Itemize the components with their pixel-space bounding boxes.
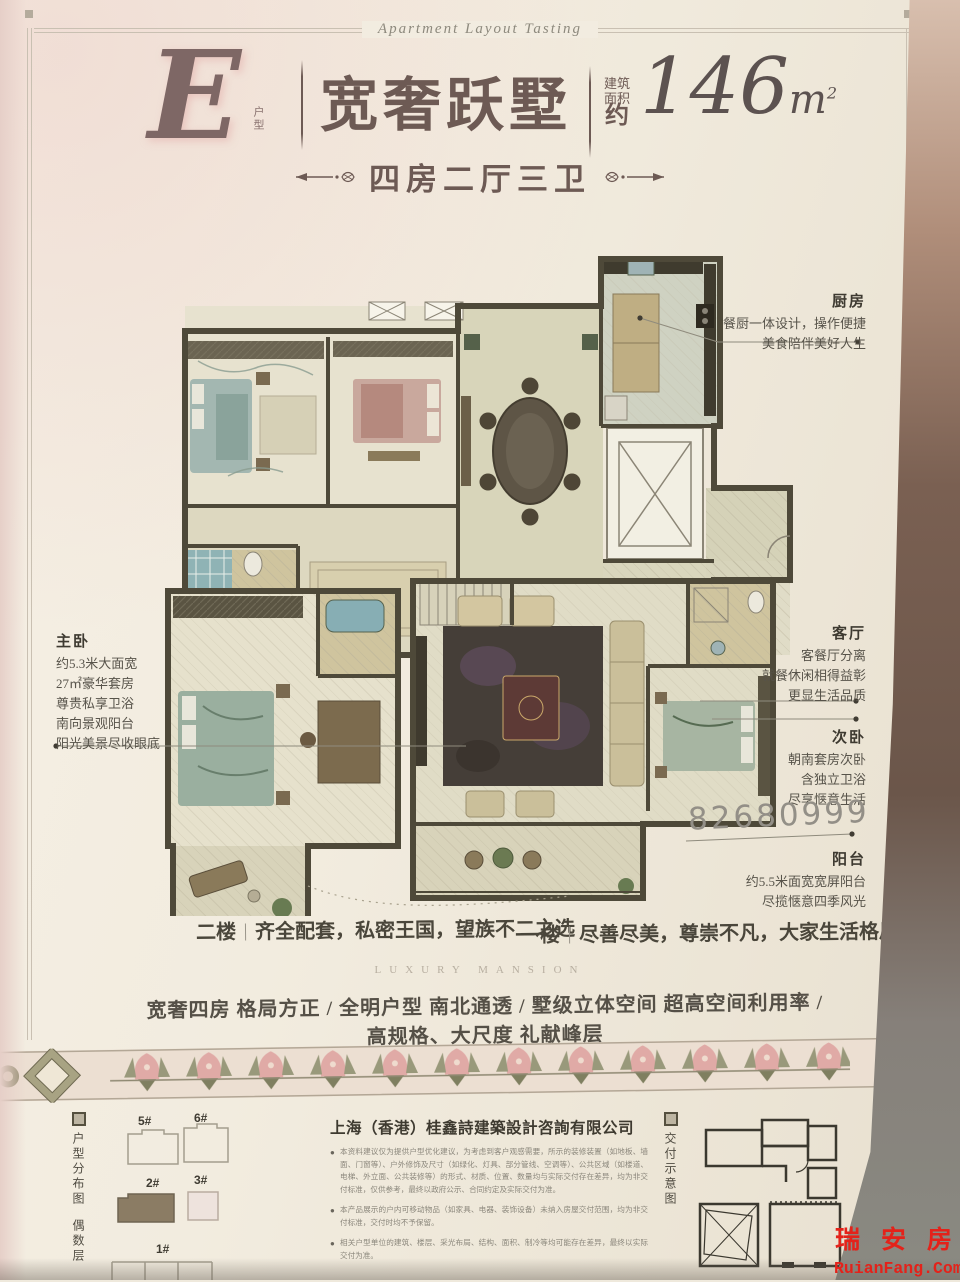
annotation-line: 约5.3米大面宽: [56, 654, 266, 674]
annotation-line: 27㎡豪华套房: [56, 674, 266, 694]
floor-label: 二楼: [196, 922, 236, 944]
annotation-line: 约5.5米面宽宽屏阳台: [640, 872, 866, 892]
annotation-line: 美食陪伴美好人生: [640, 334, 866, 354]
annotation-balcony: 阳台 约5.5米面宽宽屏阳台 尽揽惬意四季风光: [640, 848, 866, 912]
watermark-chinese: 瑞 安 房: [834, 1220, 960, 1256]
annotation-title: 阳台: [640, 848, 866, 869]
annotation-line: 就餐休闲相得益彰: [640, 666, 866, 686]
annotation-title: 客厅: [640, 622, 866, 643]
divider: [245, 923, 246, 940]
annotation-line: 客餐厅分离: [640, 646, 866, 666]
annotation-kitchen: 厨房 餐厨一体设计，操作便捷 美食陪伴美好人生: [640, 290, 866, 354]
annotation-line: 阳光美景尽收眼底: [56, 734, 266, 754]
floor-text: 尽善尽美，尊崇不凡，大家生活格局: [579, 921, 899, 946]
watermark-url: RuianFang.Com: [834, 1259, 960, 1278]
watermark: 瑞 安 房 RuianFang.Com: [834, 1220, 960, 1278]
annotation-title: 主卧: [56, 630, 266, 651]
annotation-line: 尽揽惬意四季风光: [640, 892, 866, 912]
second-floor-note: 二楼齐全配套，私密王国，望族不二之选: [196, 912, 575, 945]
first-floor-note: 一楼尽善尽美，尊崇不凡，大家生活格局: [520, 915, 899, 948]
annotation-title: 次卧: [640, 726, 866, 747]
annotation-master-bedroom: 主卧 约5.3米大面宽 27㎡豪华套房 尊贵私享卫浴 南向景观阳台 阳光美景尽收…: [56, 630, 266, 754]
phone-number: 82680999: [687, 794, 860, 837]
annotation-line: 餐厨一体设计，操作便捷: [640, 314, 866, 334]
annotation-line: 尊贵私享卫浴: [56, 694, 266, 714]
annotation-title: 厨房: [640, 290, 866, 311]
floor-label: 一楼: [520, 925, 560, 947]
annotation-line: 南向景观阳台: [56, 714, 266, 734]
annotation-line: 朝南套房次卧: [640, 750, 866, 770]
poster-photo: Apartment Layout Tasting E 户型 宽奢跃墅 建筑 面积…: [0, 0, 960, 1280]
annotation-living-room: 客厅 客餐厅分离 就餐休闲相得益彰 更显生活品质: [640, 622, 866, 706]
divider: [569, 926, 570, 943]
annotation-line: 含独立卫浴: [640, 770, 866, 790]
annotation-line: 更显生活品质: [640, 686, 866, 706]
